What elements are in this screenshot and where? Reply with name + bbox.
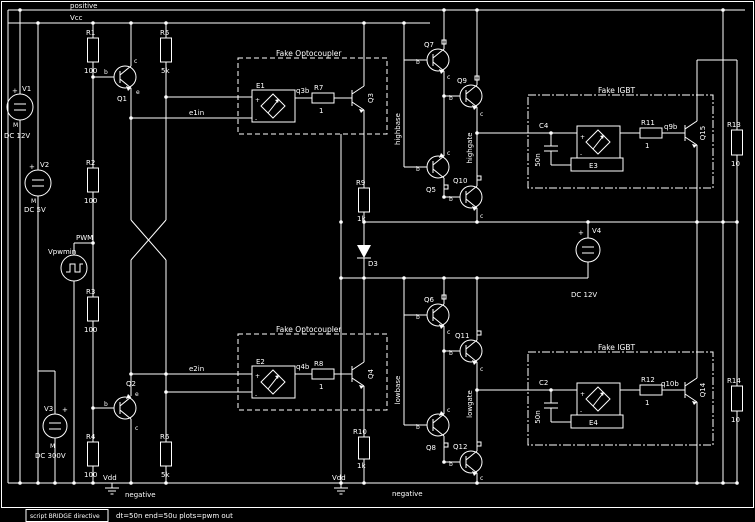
ref: R10 <box>353 428 367 436</box>
pin-b: b <box>449 95 453 102</box>
pin-c: c <box>135 425 138 432</box>
resistor-r6[interactable]: R6 5k <box>160 433 172 479</box>
ref: Q8 <box>426 444 436 452</box>
plus-mark: + <box>578 229 584 237</box>
plus-mark: + <box>255 97 260 104</box>
minus-mark: - <box>255 116 257 123</box>
subcircuit-fake-igbt-bottom[interactable]: Fake IGBT C2 50n + - E4 R12 1 q10b Q14 <box>528 343 713 445</box>
subcircuit-fake-optocoupler-bottom[interactable]: Fake Optocoupler E2 + - q4b R8 1 Q4 <box>238 325 387 410</box>
pin-marker <box>444 443 448 447</box>
pin-b: b <box>416 314 420 321</box>
status-bar: script BRIDGE directive dt=50n end=50u p… <box>26 510 233 522</box>
transistor-q10[interactable]: Q10 b c <box>449 176 483 220</box>
plus-mark: + <box>12 87 18 95</box>
net-label-negative-left[interactable]: negative <box>125 491 156 499</box>
resistor-r4[interactable]: R4 100 <box>84 433 99 479</box>
ref: Q11 <box>455 332 469 340</box>
value: 1 <box>319 107 323 115</box>
value: 1 <box>645 142 649 150</box>
pin-b: b <box>104 401 108 408</box>
resistor-r1[interactable]: R1 100 <box>84 29 99 75</box>
pin-b: b <box>449 196 453 203</box>
plus-mark: + <box>255 373 260 380</box>
esource-label: E1 <box>256 82 265 90</box>
transistor-q4-label: Q4 <box>367 368 375 379</box>
plus-mark: + <box>29 163 35 171</box>
source-vpwmin[interactable]: Vpwmin <box>48 248 87 281</box>
ref: Q5 <box>426 186 436 194</box>
source-label: V3 <box>44 405 53 413</box>
value: 1 <box>319 383 323 391</box>
ref: R11 <box>641 119 655 127</box>
net-label-lowbase[interactable]: lowbase <box>394 376 402 405</box>
ref: Q12 <box>453 443 467 451</box>
transistor-q15-label: Q15 <box>699 126 707 140</box>
source-label: V1 <box>22 85 31 93</box>
ref: R6 <box>160 433 170 441</box>
value: 1k <box>357 462 366 470</box>
esource-label: E2 <box>256 358 265 366</box>
transistor-q1[interactable]: Q1 b c e <box>104 58 140 103</box>
ref: R7 <box>314 84 323 92</box>
cap-label: C4 <box>539 122 549 130</box>
cap-value: 50n <box>534 410 542 423</box>
resistor-r9[interactable]: R9 1k <box>356 179 370 223</box>
minus-mark: M <box>31 198 36 205</box>
ref: R5 <box>160 29 169 37</box>
ground-symbol-center[interactable] <box>334 483 348 494</box>
pin-b: b <box>449 461 453 468</box>
schematic-canvas[interactable]: positive Vcc + V1 M DC 12V + V2 M DC 5V … <box>0 0 755 522</box>
transistor-q8[interactable]: Q8 b c <box>416 407 450 452</box>
box-title: Fake IGBT <box>598 86 635 95</box>
directive-text[interactable]: script BRIDGE directive <box>30 513 100 520</box>
net-label-q3b[interactable]: q3b <box>296 87 310 95</box>
value: 100 <box>84 471 97 479</box>
pin-b: b <box>416 59 420 66</box>
pin-marker <box>477 442 481 446</box>
pin-c: c <box>447 74 450 81</box>
ref: Q10 <box>453 177 467 185</box>
transistor-q9[interactable]: Q9 b c <box>449 76 483 118</box>
ref: R9 <box>356 179 365 187</box>
ref: R14 <box>727 377 741 385</box>
source-label: Vpwmin <box>48 248 76 256</box>
subcircuit-fake-optocoupler-top[interactable]: Fake Optocoupler E1 + - q3b R7 1 Q3 <box>238 49 387 134</box>
net-label-vcc[interactable]: Vcc <box>70 14 83 22</box>
pin-b: b <box>416 424 420 431</box>
pin-c: c <box>480 111 483 118</box>
source-v4[interactable]: + V4 DC 12V <box>571 227 602 299</box>
source-label: V2 <box>40 161 49 169</box>
net-label-negative-center[interactable]: negative <box>392 490 423 498</box>
value: 1k <box>357 215 366 223</box>
pin-c: c <box>447 150 450 157</box>
value: 5k <box>161 67 170 75</box>
source-value: DC 5V <box>24 206 46 214</box>
pin-c: c <box>480 366 483 373</box>
net-label-q4b[interactable]: q4b <box>296 363 310 371</box>
ref: Q9 <box>457 77 467 85</box>
box-title: Fake Optocoupler <box>276 49 342 58</box>
resistor-r5[interactable]: R5 5k <box>160 29 172 75</box>
resistor-r13[interactable]: R13 10 <box>727 121 743 168</box>
ref: Q2 <box>126 380 136 388</box>
plus-mark: + <box>580 134 585 141</box>
net-label-highgate[interactable]: highgate <box>466 132 474 163</box>
value: 100 <box>84 326 97 334</box>
ref: R3 <box>86 288 95 296</box>
net-label-q10b[interactable]: q10b <box>661 380 679 388</box>
ref: R2 <box>86 159 95 167</box>
subcircuit-fake-igbt-top[interactable]: Fake IGBT C4 50n + - E3 R11 1 q9b Q15 <box>528 86 713 188</box>
pin-c: c <box>447 329 450 336</box>
minus-mark: M <box>13 122 18 129</box>
transistor-q3-label: Q3 <box>367 93 375 103</box>
pin-marker <box>477 331 481 335</box>
minus-mark: - <box>255 392 257 399</box>
junction-dots <box>18 8 739 485</box>
minus-mark: - <box>580 151 582 158</box>
source-v3[interactable]: V3 + M DC 300V <box>35 405 68 460</box>
pin-e: e <box>136 89 140 96</box>
pin-b: b <box>449 350 453 357</box>
box-title: Fake Optocoupler <box>276 325 342 334</box>
net-label-e1in[interactable]: e1in <box>189 109 204 117</box>
box-title: Fake IGBT <box>598 343 635 352</box>
source-value: DC 300V <box>35 452 66 460</box>
pin-c: c <box>480 213 483 220</box>
value: 10 <box>731 416 740 424</box>
pin-c: c <box>134 58 137 65</box>
ground-symbol-left[interactable] <box>105 483 119 494</box>
net-label-pwm[interactable]: PWM <box>76 234 93 242</box>
pin-marker <box>477 176 481 180</box>
value: 100 <box>84 197 97 205</box>
net-label-highbase[interactable]: highbase <box>394 113 402 145</box>
transistor-q5[interactable]: Q5 b c <box>416 150 450 194</box>
wires[interactable] <box>8 10 745 483</box>
cap-value: 50n <box>534 153 542 166</box>
ref: D3 <box>368 260 378 268</box>
resistor-r3[interactable]: R3 100 <box>84 288 99 334</box>
source-label: V4 <box>592 227 602 235</box>
resistor-r10[interactable]: R10 1k <box>353 428 370 470</box>
resistor-r14[interactable]: R14 10 <box>727 377 743 424</box>
net-label-vdd-left[interactable]: Vdd <box>103 474 117 482</box>
transistor-q14-label: Q14 <box>699 382 707 397</box>
plus-mark: + <box>580 391 585 398</box>
ref: R4 <box>86 433 96 441</box>
esource-label: E3 <box>589 162 598 170</box>
net-label-vdd-center[interactable]: Vdd <box>332 474 346 482</box>
minus-mark: M <box>50 443 55 450</box>
plus-mark: + <box>62 406 68 414</box>
pin-b: b <box>104 69 108 76</box>
diode-d3[interactable]: D3 <box>357 245 378 268</box>
pin-marker <box>444 185 448 189</box>
esource-label: E4 <box>589 419 598 427</box>
pin-e: e <box>135 391 139 398</box>
net-label-positive[interactable]: positive <box>70 2 97 10</box>
source-value: DC 12V <box>571 291 597 299</box>
transistor-q11[interactable]: Q11 b c <box>449 331 483 373</box>
value: 100 <box>84 67 97 75</box>
cap-label: C2 <box>539 379 548 387</box>
value: 1 <box>645 399 649 407</box>
ref: Q6 <box>424 296 435 304</box>
net-label-e2in[interactable]: e2in <box>189 365 204 373</box>
value: 5k <box>161 471 170 479</box>
value: 10 <box>731 160 740 168</box>
ref: R1 <box>86 29 95 37</box>
schematic-window: positive Vcc + V1 M DC 12V + V2 M DC 5V … <box>0 0 755 522</box>
ref: R12 <box>641 376 655 384</box>
ref: Q1 <box>117 95 127 103</box>
pin-b: b <box>416 166 420 173</box>
ref: Q7 <box>424 41 434 49</box>
resistor-r2[interactable]: R2 100 <box>84 159 99 205</box>
net-label-lowgate[interactable]: lowgate <box>466 390 474 418</box>
transistor-q2[interactable]: Q2 b e c <box>104 380 139 432</box>
minus-mark: - <box>580 408 582 415</box>
pin-c: c <box>480 475 483 482</box>
ref: R13 <box>727 121 741 129</box>
source-value: DC 12V <box>4 132 30 140</box>
simulation-params: dt=50n end=50u plots=pwm out <box>116 512 233 520</box>
net-label-q9b[interactable]: q9b <box>664 123 678 131</box>
ref: R8 <box>314 360 323 368</box>
pin-c: c <box>447 407 450 414</box>
